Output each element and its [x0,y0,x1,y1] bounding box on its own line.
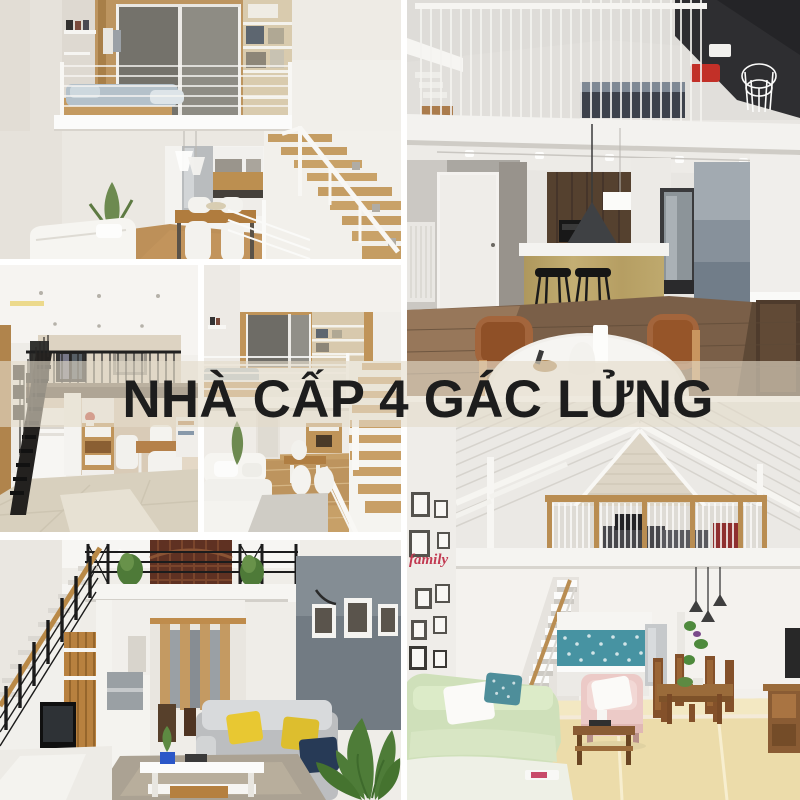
svg-text:family: family [409,552,448,568]
